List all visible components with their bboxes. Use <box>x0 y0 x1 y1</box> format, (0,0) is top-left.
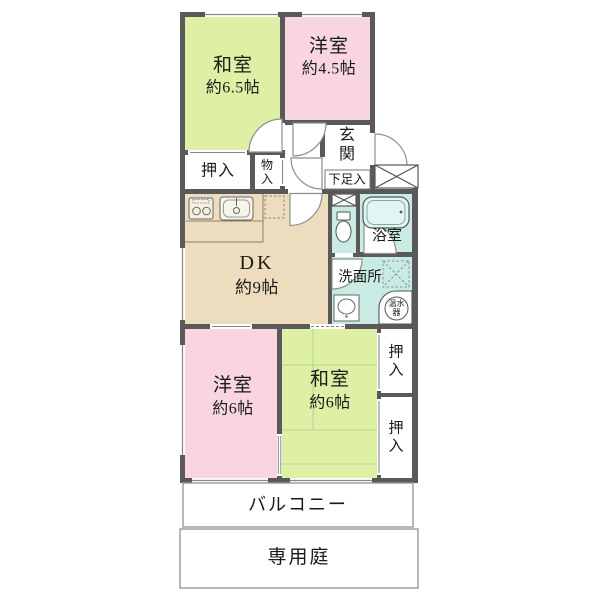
room-label-oshiire-right-2: 押 入 <box>388 420 403 455</box>
room-label-water-heater: 温水 器 <box>389 299 405 317</box>
room-label-getabako: 下足入 <box>328 173 366 188</box>
room-label-washitsu65-size: 約6.5帖 <box>206 80 261 99</box>
washbasin-icon <box>334 295 359 321</box>
room-label-balcony: バルコニー <box>248 494 348 515</box>
window <box>302 12 362 17</box>
room-label-yoshitsu6-name: 洋室 <box>213 375 253 397</box>
room-label-washitsu6-size: 約6帖 <box>309 395 351 414</box>
room-label-bathroom: 浴室 <box>372 228 402 246</box>
room-label-washitsu6-name: 和室 <box>310 369 350 391</box>
closet-front <box>377 399 381 475</box>
door-arc-entrance <box>375 134 407 166</box>
sliding-door <box>277 434 282 476</box>
sliding-door <box>210 324 252 329</box>
window <box>192 478 268 483</box>
room-label-washroom: 洗面所 <box>338 269 382 286</box>
closet-front <box>377 333 381 391</box>
room-label-oshiire-top: 押入 <box>201 163 235 182</box>
door-arc-hall-genkan <box>291 158 322 189</box>
kitchen-sink-icon <box>220 197 253 220</box>
bathtub-icon <box>363 197 409 228</box>
stove-icon <box>189 198 213 219</box>
closet-front <box>280 158 285 186</box>
pipe-space-icon <box>332 194 356 206</box>
room-label-dk-size: 約9帖 <box>235 278 279 298</box>
window <box>180 248 185 320</box>
room-label-yoshitsu45-name: 洋室 <box>309 36 349 58</box>
toilet-icon <box>336 212 351 242</box>
room-label-yoshitsu45-size: 約4.5帖 <box>302 61 357 80</box>
window <box>205 12 278 17</box>
room-label-mono-ire: 物 入 <box>261 158 273 186</box>
room-label-genkan: 玄 関 <box>339 127 355 165</box>
closet-front <box>188 150 247 155</box>
room-label-oshiire-right-1: 押 入 <box>388 344 403 379</box>
floor-plan: 和室 約6.5帖 洋室 約4.5帖 押入 物 入 玄 関 下足入 DK 約9帖 … <box>0 0 600 600</box>
meter-box-icon <box>375 165 418 188</box>
room-label-garden: 専用庭 <box>267 547 330 569</box>
sliding-door <box>310 324 345 329</box>
room-label-yoshitsu6-size: 約6帖 <box>212 401 254 420</box>
window <box>290 478 372 483</box>
window <box>180 345 185 455</box>
room-label-dk-name: DK <box>240 252 275 276</box>
room-label-washitsu65-name: 和室 <box>213 55 253 77</box>
doorway <box>335 253 353 257</box>
